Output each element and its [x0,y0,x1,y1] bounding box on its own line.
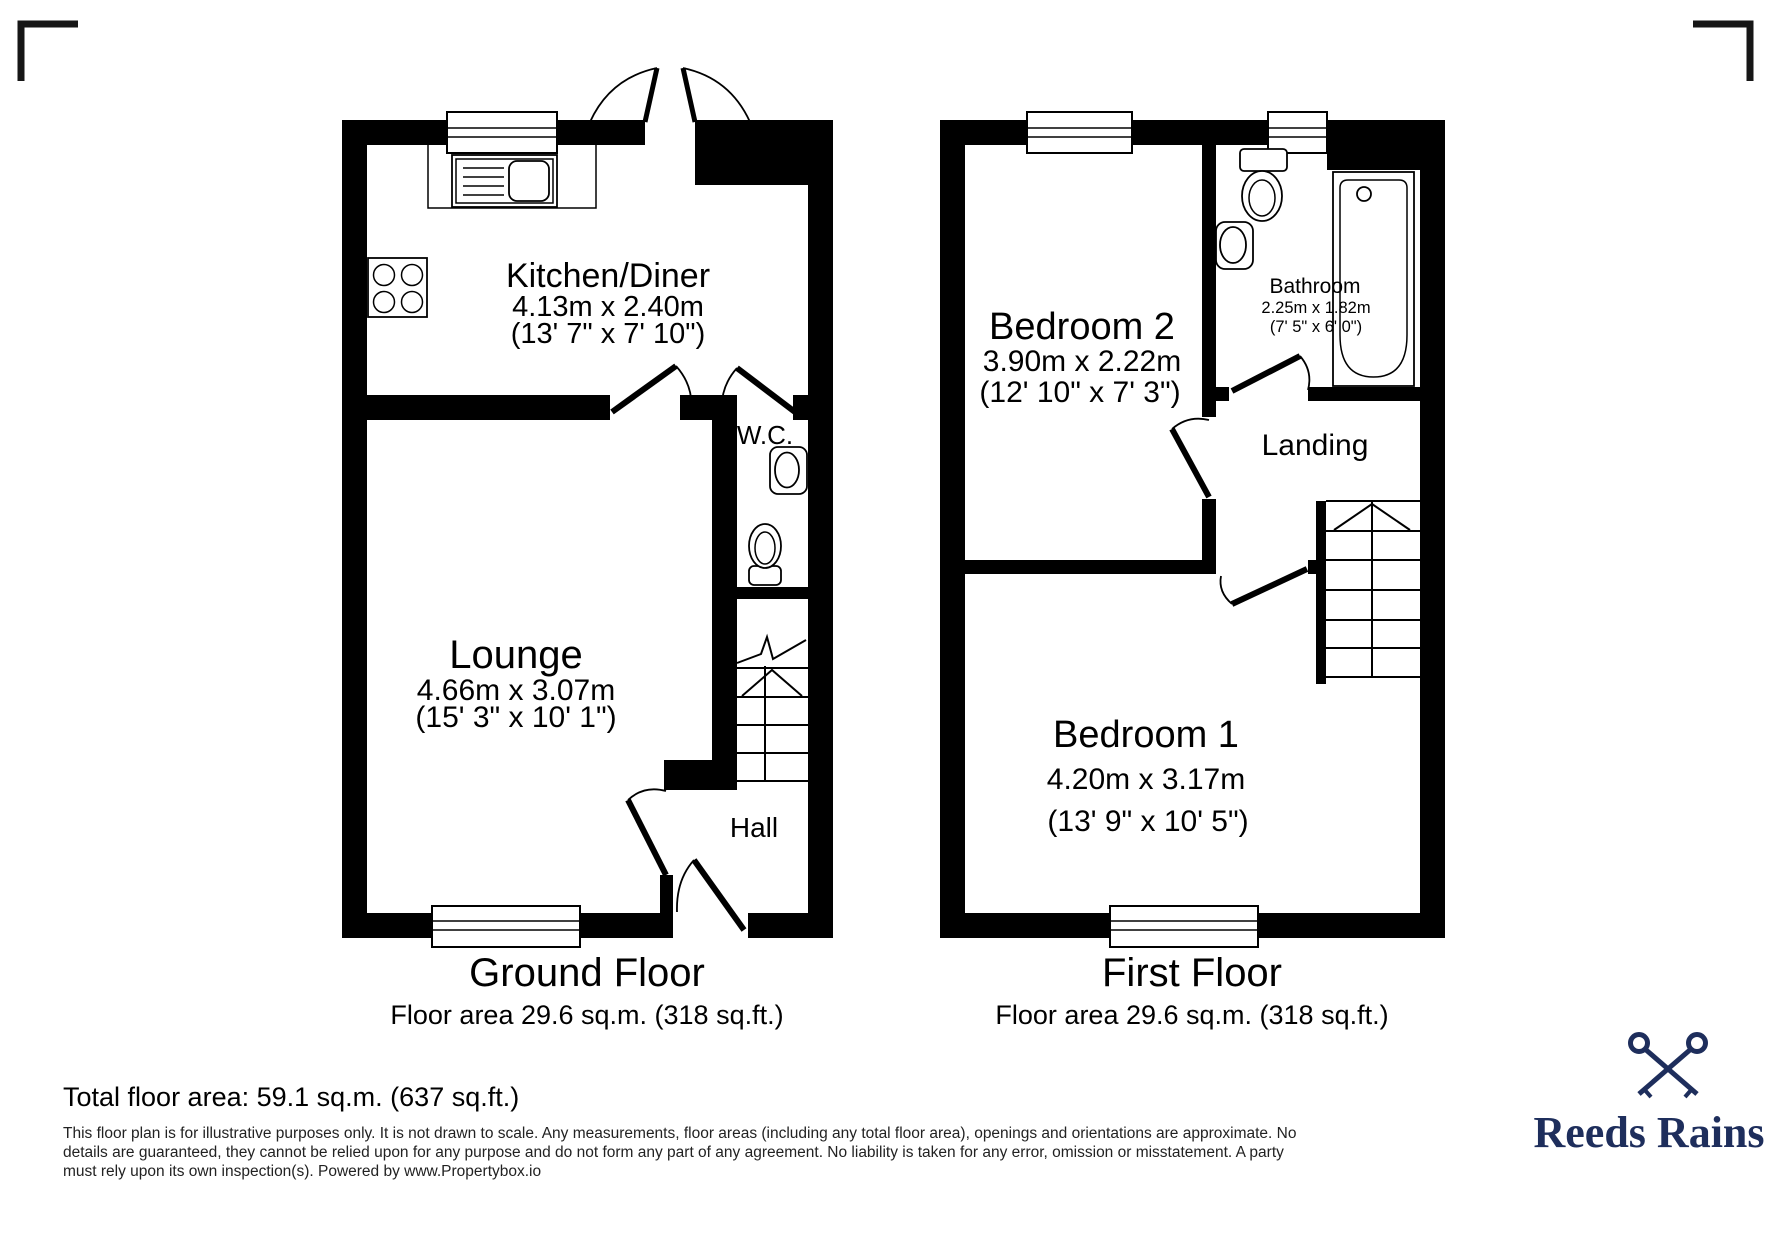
ff-bed2-right-wall [1202,120,1216,574]
bedroom1-imperial: (13' 9" x 10' 5") [1047,805,1248,838]
gf-kitchen-window [447,112,557,153]
bedroom2-imperial: (12' 10" x 7' 3") [979,376,1180,409]
gf-column-wall [712,395,737,762]
disclaimer-line-3: must rely upon its own inspection(s). Po… [63,1163,541,1180]
kitchen-sink-unit [452,155,557,207]
lounge-imperial: (15' 3" x 10' 1") [415,701,616,734]
crop-mark-top-left [21,24,78,81]
crossed-keys-icon [1631,1035,1706,1098]
ff-top-right-block [1327,120,1445,170]
stair-up-chevron [742,670,802,696]
floor-captions: Ground Floor Floor area 29.6 sq.m. (318 … [390,951,1388,1030]
bedroom1-label: Bedroom 1 [1053,714,1239,756]
ff-left-wall [940,120,965,938]
gf-wc-bottom-wall [737,587,808,599]
wc-toilet [749,524,781,585]
kitchen-hob [368,258,427,317]
brand-name: Reeds Rains [1533,1108,1764,1157]
gf-bottom-wall [342,913,833,938]
ff-bathroom-window [1268,112,1327,153]
bathroom-basin [1216,222,1253,269]
wc-label: W.C. [737,420,793,450]
first-floor-title: First Floor [1102,951,1282,995]
landing-label: Landing [1262,429,1369,462]
gf-top-right-block [695,120,833,185]
footer: Total floor area: 59.1 sq.m. (637 sq.ft.… [63,1035,1765,1181]
patio-door-leaf-left [645,68,657,122]
floorplan-page: Kitchen/Diner 4.13m x 2.40m (13' 7" x 7'… [0,0,1771,1239]
floorplan-canvas: Kitchen/Diner 4.13m x 2.40m (13' 7" x 7'… [0,0,1771,1239]
ff-stairs-wall [1316,501,1326,684]
gf-left-wall [342,120,367,938]
gf-patio-double-doors [590,68,750,122]
bathroom-toilet [1240,149,1287,221]
ff-bed1-window [1110,906,1258,947]
gf-hall-corner-block [664,760,737,790]
gf-right-wall [808,120,833,938]
ff-stairs [1326,501,1420,677]
gf-lounge-window [432,906,580,947]
gf-stairs [737,637,808,781]
patio-door-leaf-right [683,68,695,122]
disclaimer-line-2: details are guaranteed, they cannot be r… [63,1144,1284,1161]
hall-label: Hall [730,812,778,843]
gf-hall-door-post [660,875,673,913]
first-floor-plan: Bedroom 2 3.90m x 2.22m (12' 10" x 7' 3"… [940,112,1445,947]
disclaimer-line-1: This floor plan is for illustrative purp… [63,1125,1296,1142]
kitchen-label: Kitchen/Diner [506,257,710,295]
lounge-label: Lounge [449,633,582,677]
wc-basin [770,447,807,494]
gf-hall-door [628,789,666,875]
bathroom-label: Bathroom [1269,275,1360,298]
reeds-rains-logo: Reeds Rains [1533,1035,1764,1158]
bath-tap [1357,187,1371,201]
bedroom2-metric: 3.90m x 2.22m [983,345,1181,378]
ground-floor-plan: Kitchen/Diner 4.13m x 2.40m (13' 7" x 7'… [342,68,833,947]
crop-mark-top-right [1693,24,1750,81]
total-floor-area: Total floor area: 59.1 sq.m. (637 sq.ft.… [63,1082,519,1112]
kitchen-imperial: (13' 7" x 7' 10") [511,318,705,350]
crop-marks [21,24,1750,81]
ground-floor-title: Ground Floor [469,951,705,995]
ground-floor-area: Floor area 29.6 sq.m. (318 sq.ft.) [390,1000,783,1030]
gf-patio-doorway [645,118,695,147]
first-floor-area: Floor area 29.6 sq.m. (318 sq.ft.) [995,1000,1388,1030]
bedroom1-metric: 4.20m x 3.17m [1047,763,1245,796]
ff-bed2-window [1027,112,1132,153]
ff-right-wall [1420,120,1445,938]
bedroom2-label: Bedroom 2 [989,306,1175,348]
bathroom-metric: 2.25m x 1.82m [1261,299,1370,317]
kitchen-sink-bowl [509,161,549,201]
stair-break-line [737,637,806,663]
bathroom-imperial: (7' 5" x 6' 0") [1270,318,1362,336]
